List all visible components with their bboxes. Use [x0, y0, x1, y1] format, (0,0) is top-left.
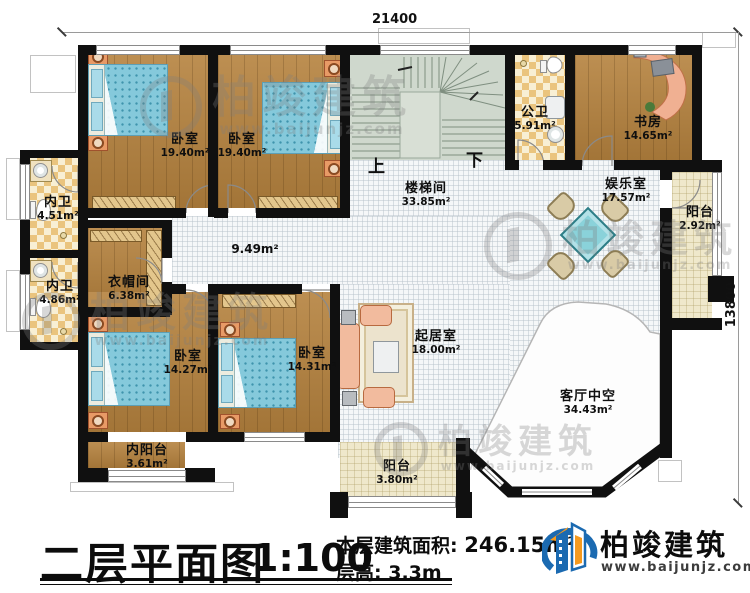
wall [78, 45, 88, 482]
wall [660, 160, 722, 172]
wall [78, 307, 170, 317]
room-label-balcony-east: 阳台2.92m² [660, 206, 740, 232]
room-label-sitting-room: 起居室18.00m² [396, 330, 476, 356]
wall [162, 220, 172, 258]
wall [208, 432, 244, 442]
brand-logo-icon [542, 516, 598, 584]
room-label-entertainment: 娱乐室17.57m² [586, 178, 666, 204]
room-label-living-void: 客厅中空34.43m² [548, 390, 628, 416]
right-dimension-line [738, 32, 739, 504]
brand-website: www.baijunjz.com [601, 560, 750, 575]
room-label-cloakroom: 衣帽间6.38m² [89, 276, 169, 302]
wall [20, 250, 78, 258]
wall [256, 208, 348, 218]
floor-area-label: 本层建筑面积: [336, 535, 458, 557]
window [108, 470, 186, 482]
window [244, 432, 305, 442]
wall [660, 318, 722, 330]
top-dimension-value: 21400 [372, 12, 417, 27]
room-label-staircase: 楼梯间33.85m² [386, 182, 466, 208]
wall [305, 432, 340, 442]
window [96, 45, 180, 55]
floor-height-note: 层高: 3.3m [336, 558, 442, 585]
wall [660, 330, 672, 458]
floor-plan-page: 21400 13800 [0, 0, 750, 593]
room-label-corridor: 9.49m² [215, 243, 295, 256]
wall [185, 468, 215, 482]
wall [340, 45, 350, 218]
brand-name: 柏竣建筑 [600, 522, 728, 564]
stairs-up-label: 上 [368, 152, 385, 177]
wall [208, 45, 218, 217]
wall [88, 208, 186, 218]
wall [214, 208, 228, 218]
room-label-bedroom-3: 卧室14.27m² [148, 350, 228, 376]
window [380, 45, 470, 55]
floor-height-value: 3.3m [388, 562, 441, 584]
wall [505, 160, 519, 170]
plan-title: 二层平面图 [40, 530, 265, 592]
wall [82, 432, 108, 442]
room-label-bedroom-4: 卧室14.31m² [272, 347, 352, 373]
room-label-bedroom-2: 卧室19.40m² [202, 133, 282, 159]
stair-landing [400, 92, 440, 158]
room-label-ensuite-1: 内卫4.51m² [18, 196, 98, 222]
room-label-inner-balcony: 内阳台3.61m² [107, 444, 187, 470]
column [330, 492, 348, 518]
desk [634, 47, 686, 120]
room-label-balcony-south: 阳台3.80m² [357, 460, 437, 486]
column [456, 492, 472, 518]
window [230, 45, 326, 55]
stairs-down-label: 下 [466, 146, 483, 171]
window [628, 45, 676, 55]
wall [20, 342, 78, 350]
room-label-public-bathroom: 公卫5.91m² [495, 106, 575, 132]
floor-area-note: 本层建筑面积: 246.15m² [336, 531, 576, 558]
wall [692, 45, 702, 170]
floor-height-label: 层高: [336, 562, 382, 584]
plant [645, 102, 655, 112]
wall [456, 438, 470, 498]
wall [543, 160, 582, 170]
computer-monitor [651, 59, 674, 77]
room-label-study: 书房14.65m² [608, 116, 688, 142]
wall [78, 468, 108, 482]
room-label-ensuite-2: 内卫4.86m² [20, 280, 100, 306]
wall [88, 220, 162, 228]
balcony-railing [348, 496, 456, 508]
right-dimension-value: 13800 [724, 282, 739, 327]
wall [214, 284, 302, 294]
top-dimension-line [62, 32, 738, 33]
wall [20, 150, 78, 158]
